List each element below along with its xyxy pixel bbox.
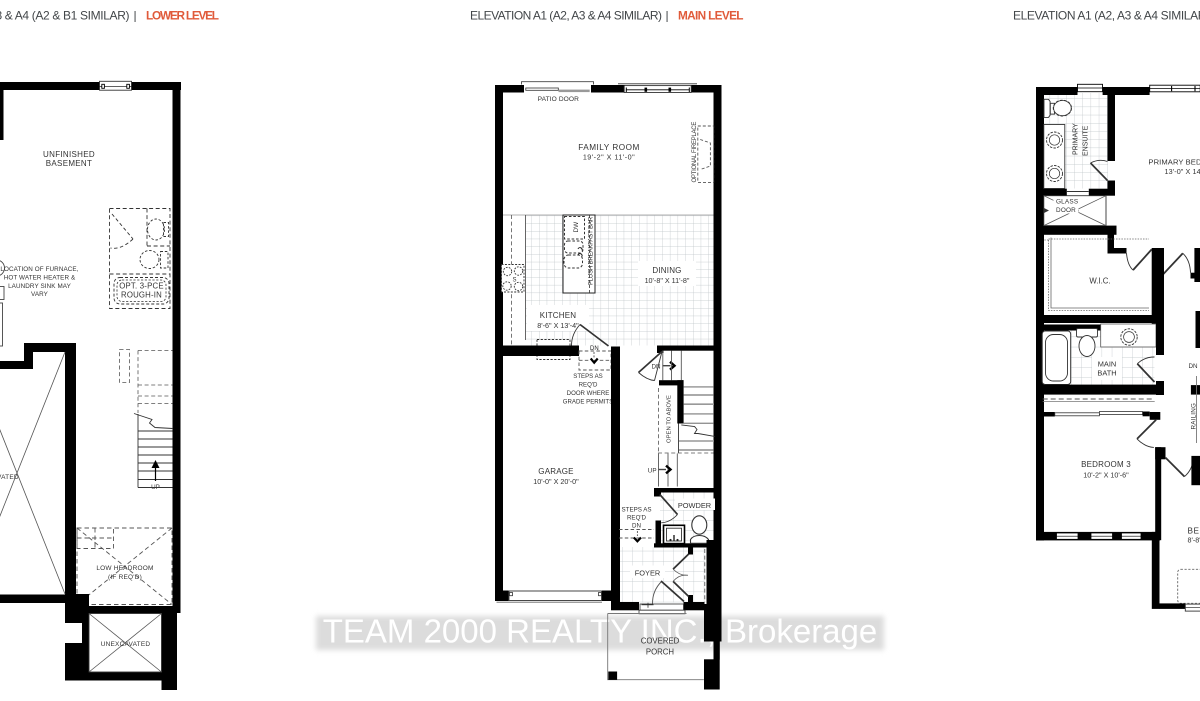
- svg-text:VARY: VARY: [31, 291, 49, 298]
- svg-text:FOYER: FOYER: [635, 569, 660, 578]
- svg-text:MAIN LEVEL: MAIN LEVEL: [678, 9, 744, 23]
- svg-text:DN: DN: [1189, 363, 1199, 370]
- svg-text:S: S: [512, 278, 516, 284]
- svg-text:BEDROOM 2: BEDROOM 2: [1188, 527, 1200, 536]
- svg-text:GRADE PERMITS: GRADE PERMITS: [563, 399, 613, 406]
- svg-text:|: |: [134, 9, 137, 23]
- svg-text:DN: DN: [590, 346, 599, 352]
- svg-text:LOW HEADROOM: LOW HEADROOM: [96, 565, 153, 572]
- svg-text:UP: UP: [151, 484, 160, 491]
- svg-text:UNEXCAVATED: UNEXCAVATED: [101, 641, 151, 648]
- svg-text:REQ'D: REQ'D: [579, 382, 598, 389]
- svg-text:DOOR WHERE: DOOR WHERE: [567, 390, 610, 397]
- svg-text:|: |: [666, 9, 669, 23]
- svg-text:BEDROOM 3: BEDROOM 3: [1081, 460, 1131, 469]
- svg-text:OPT. 3-PCE: OPT. 3-PCE: [119, 282, 163, 291]
- svg-text:PATIO DOOR: PATIO DOOR: [538, 96, 580, 103]
- svg-text:STEPS AS: STEPS AS: [573, 373, 602, 380]
- svg-text:TEAM 2000 REALTY INC., Brokera: TEAM 2000 REALTY INC., Brokerage: [323, 613, 878, 650]
- svg-text:13'-0" X 14'-4": 13'-0" X 14'-4": [1165, 167, 1200, 176]
- svg-text:UP: UP: [648, 468, 657, 475]
- svg-text:OPTIONAL FIREPLACE: OPTIONAL FIREPLACE: [692, 122, 698, 183]
- svg-text:PORCH: PORCH: [646, 648, 674, 657]
- svg-text:W.I.C.: W.I.C.: [1089, 277, 1110, 286]
- svg-text:FAMILY ROOM: FAMILY ROOM: [578, 143, 640, 152]
- svg-text:ELEVATION A1 (A2, A3 & A4 SIMI: ELEVATION A1 (A2, A3 & A4 SIMILAR): [1013, 9, 1200, 23]
- svg-text:ENSUITE: ENSUITE: [1083, 125, 1090, 156]
- svg-text:10'-2" X 10'-6": 10'-2" X 10'-6": [1083, 471, 1129, 480]
- svg-text:STEPS AS: STEPS AS: [622, 507, 652, 514]
- svg-text:LOWER LEVEL: LOWER LEVEL: [146, 9, 219, 23]
- svg-text:HOT WATER HEATER &: HOT WATER HEATER &: [4, 275, 76, 282]
- svg-text:KITCHEN: KITCHEN: [540, 311, 577, 320]
- svg-text:3 & A4 (A2 & B1 SIMILAR): 3 & A4 (A2 & B1 SIMILAR): [0, 9, 130, 23]
- svg-text:DN: DN: [652, 364, 662, 371]
- svg-text:ROUGH-IN: ROUGH-IN: [121, 291, 162, 300]
- svg-text:GARAGE: GARAGE: [538, 467, 573, 476]
- svg-text:UNEXCAVATED: UNEXCAVATED: [0, 474, 19, 481]
- svg-text:GLASS: GLASS: [1056, 199, 1078, 206]
- svg-text:ELEVATION A1 (A2, A3 & A4 SIMI: ELEVATION A1 (A2, A3 & A4 SIMILAR): [470, 9, 662, 23]
- svg-text:LOCATION OF FURNACE,: LOCATION OF FURNACE,: [0, 266, 78, 273]
- svg-text:10'-0" X 20'-0": 10'-0" X 20'-0": [533, 477, 579, 486]
- svg-text:LAUNDRY SINK MAY: LAUNDRY SINK MAY: [8, 283, 72, 290]
- svg-text:REQ'D: REQ'D: [627, 515, 647, 522]
- svg-text:8'-8" X 12'-0": 8'-8" X 12'-0": [1188, 536, 1200, 545]
- svg-text:MAIN: MAIN: [1098, 360, 1116, 369]
- svg-text:DINING: DINING: [652, 266, 681, 275]
- svg-text:BASEMENT: BASEMENT: [46, 159, 92, 168]
- svg-text:DN: DN: [632, 523, 641, 530]
- svg-text:(IF REQ'D): (IF REQ'D): [108, 574, 142, 581]
- svg-text:8'-6" X 13'-4": 8'-6" X 13'-4": [537, 321, 579, 330]
- svg-text:10'-8" X 11'-8": 10'-8" X 11'-8": [645, 276, 690, 285]
- svg-text:PRIMARY: PRIMARY: [1073, 123, 1080, 155]
- svg-text:19'-2" X 11'-0": 19'-2" X 11'-0": [583, 153, 635, 162]
- svg-text:DOOR: DOOR: [1056, 207, 1076, 214]
- svg-text:DW: DW: [573, 221, 580, 233]
- svg-text:BATH: BATH: [1097, 369, 1116, 378]
- svg-text:POWDER: POWDER: [678, 501, 711, 510]
- svg-text:COVERED: COVERED: [641, 637, 680, 646]
- svg-text:UNFINISHED: UNFINISHED: [43, 150, 95, 159]
- svg-text:FLUSH BREAKFAST BAR: FLUSH BREAKFAST BAR: [587, 216, 594, 285]
- svg-text:PRIMARY BEDROOM: PRIMARY BEDROOM: [1148, 158, 1200, 167]
- svg-text:OPEN TO ABOVE: OPEN TO ABOVE: [667, 395, 673, 443]
